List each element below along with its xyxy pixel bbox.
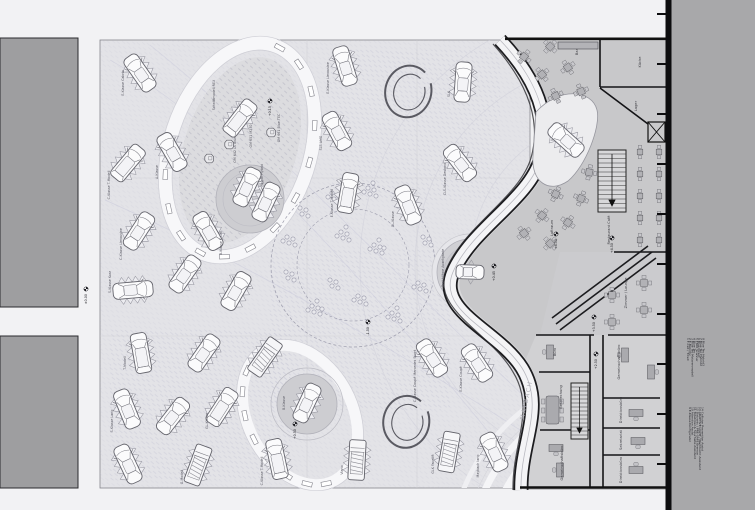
gravel-dot bbox=[335, 234, 339, 238]
level-marker-value: ±0.00 bbox=[84, 294, 88, 304]
gravel-dot bbox=[292, 278, 296, 282]
level-marker-value: +0.50 bbox=[293, 429, 297, 439]
level-marker-icon bbox=[293, 422, 297, 426]
level-marker-icon bbox=[492, 264, 496, 268]
restaurant-table bbox=[637, 145, 643, 158]
gravel-dot bbox=[416, 281, 420, 285]
room-label: Büro bbox=[553, 348, 557, 356]
car-label: Drehbühne Avantgarde bbox=[441, 249, 445, 287]
gravel-dot bbox=[423, 241, 427, 245]
gravel-dot bbox=[352, 298, 356, 302]
gravel-dot bbox=[291, 237, 295, 241]
gravel-dot bbox=[286, 276, 290, 280]
gravel-dot bbox=[290, 272, 294, 276]
gravel-dot bbox=[412, 285, 416, 289]
gravel-dot bbox=[380, 251, 384, 255]
gravel-dot bbox=[304, 208, 308, 212]
room-label: Restaurant Café bbox=[607, 215, 611, 245]
gravel-dot bbox=[418, 287, 422, 291]
room-label: Sekretariat bbox=[619, 429, 623, 449]
gravel-dot bbox=[386, 315, 390, 319]
car-label: B-Klasse F-Cell bbox=[219, 231, 223, 255]
gravel-dot bbox=[284, 270, 288, 274]
site-plan-svg: MAYBACH OM 661 Blue TECOM 651 M270 BIT T… bbox=[0, 0, 755, 510]
car-label: Maybach lang bbox=[476, 455, 480, 478]
car-label: E-Klasse Coupé bbox=[459, 366, 463, 391]
gravel-dot bbox=[374, 249, 378, 253]
engine-model bbox=[267, 128, 276, 137]
car-label: SLK bbox=[447, 90, 451, 97]
level-marker-icon bbox=[84, 287, 88, 291]
gravel-dot bbox=[422, 283, 426, 287]
gravel-dot bbox=[306, 308, 310, 312]
level-marker-value: +0.45 bbox=[492, 271, 496, 281]
gravel-dot bbox=[398, 319, 402, 323]
car-label: C-Klasse Limousine bbox=[119, 228, 123, 260]
display-panel bbox=[312, 120, 317, 130]
room-label: Küche bbox=[638, 56, 642, 68]
gravel-dot bbox=[421, 235, 425, 239]
gravel-dot bbox=[356, 294, 360, 298]
gravel-dot bbox=[281, 239, 285, 243]
level-marker-value: +0.15 bbox=[268, 106, 272, 116]
gravel-dot bbox=[330, 284, 334, 288]
gravel-dot bbox=[427, 237, 431, 241]
section-cut-bar bbox=[666, 0, 672, 510]
gravel-dot bbox=[371, 181, 375, 185]
car-label: CLS-Klasse Designo bbox=[443, 163, 447, 195]
car-label: E-Klasse T-Modell bbox=[330, 189, 334, 218]
gravel-dot bbox=[336, 286, 340, 290]
display-panel bbox=[163, 170, 168, 180]
level-marker-value: +4.50 bbox=[554, 239, 558, 249]
site-plan-sheet: MAYBACH OM 661 Blue TECOM 651 M270 BIT T… bbox=[0, 0, 755, 510]
bar-counter bbox=[558, 42, 598, 49]
car-label: GLK Facelift bbox=[431, 454, 435, 474]
gravel-dot bbox=[366, 186, 370, 190]
gravel-dot bbox=[368, 247, 372, 251]
gravel-dot bbox=[316, 306, 320, 310]
restaurant-table bbox=[656, 167, 662, 180]
gravel-dot bbox=[334, 280, 338, 284]
stair-restaurant bbox=[598, 150, 626, 212]
room-label: Bar bbox=[575, 48, 579, 55]
restaurant-table bbox=[656, 145, 662, 158]
car-label: S-Klasse Kurz bbox=[108, 271, 112, 293]
room-label: Direktionsbüro bbox=[619, 397, 623, 423]
gravel-dot bbox=[392, 317, 396, 321]
gravel-dot bbox=[315, 299, 319, 303]
car-label: C-Klasse Coupé Mercedes Sport bbox=[413, 349, 417, 402]
gravel-dot bbox=[424, 289, 428, 293]
gravel-dot bbox=[298, 206, 302, 210]
legend-item: 8 Blue Tec Hybrid3 bbox=[701, 338, 705, 366]
car-label: SLS AMG bbox=[319, 135, 323, 150]
legend-item: 14 Collision Prevention Assist bbox=[701, 407, 705, 452]
gravel-dot bbox=[368, 192, 372, 196]
level-marker-icon bbox=[366, 320, 370, 324]
legend-panel bbox=[672, 0, 755, 510]
room-label: Zimmer / Lounge bbox=[624, 277, 628, 309]
gravel-dot bbox=[364, 302, 368, 306]
gravel-dot bbox=[429, 243, 433, 247]
gravel-dot bbox=[287, 241, 291, 245]
gravel-dot bbox=[362, 296, 366, 300]
car-label: Viano bbox=[340, 465, 344, 474]
car-label: S-Klasse Lang bbox=[110, 410, 114, 433]
stair-office bbox=[571, 383, 588, 439]
gravel-dot bbox=[293, 243, 297, 247]
elevator bbox=[648, 122, 665, 142]
gravel-dot bbox=[378, 245, 382, 249]
level-marker-icon bbox=[554, 232, 558, 236]
room-label: Gemeinschaftsbüro bbox=[560, 446, 564, 481]
gravel-dot bbox=[312, 310, 316, 314]
gravel-dot bbox=[390, 311, 394, 315]
room-label: Direktionsbüro bbox=[619, 457, 623, 483]
gravel-dot bbox=[344, 225, 348, 229]
gravel-dot bbox=[300, 212, 304, 216]
level-marker-value: +2.50 bbox=[594, 359, 598, 369]
gravel-dot bbox=[328, 278, 332, 282]
restaurant-table bbox=[637, 167, 643, 180]
gravel-dot bbox=[374, 194, 378, 198]
car-label: E-Klasse Limousine bbox=[326, 62, 330, 94]
gravel-dot bbox=[318, 312, 322, 316]
gravel-dot bbox=[358, 300, 362, 304]
gravel-dot bbox=[372, 188, 376, 192]
restaurant-table bbox=[656, 233, 662, 246]
restaurant-table bbox=[656, 189, 662, 202]
level-marker-value: -1.50 bbox=[366, 327, 370, 336]
gravel-dot bbox=[395, 306, 399, 310]
level-marker-icon bbox=[592, 315, 596, 319]
gravel-dot bbox=[347, 238, 351, 242]
car-label: B-Klasse bbox=[282, 396, 286, 410]
car-label: C-Klasse T-Modell bbox=[107, 171, 111, 200]
car-label: T-Modell bbox=[123, 356, 127, 371]
gravel-dot bbox=[310, 304, 314, 308]
gravel-dot bbox=[339, 230, 343, 234]
level-marker-icon bbox=[268, 99, 272, 103]
gravel-dot bbox=[306, 214, 310, 218]
room-label: Besprechung bbox=[559, 385, 563, 409]
car-label: E-Klasse Cabrio bbox=[121, 70, 125, 96]
gravel-dot bbox=[396, 313, 400, 317]
car-label: SL-Klasse bbox=[391, 211, 395, 227]
display-panel bbox=[240, 387, 245, 397]
room-label: Lager bbox=[634, 100, 638, 111]
car-label: GL-Klasse bbox=[205, 413, 209, 429]
restaurant-table bbox=[637, 211, 643, 224]
restaurant-table bbox=[637, 233, 643, 246]
gravel-dot bbox=[341, 236, 345, 240]
adjacent-building-south bbox=[0, 336, 78, 488]
car-label: Schnittmodell REX bbox=[212, 79, 216, 110]
level-marker-icon bbox=[594, 352, 598, 356]
car-label: C-Klasse T-Modell bbox=[260, 457, 264, 486]
room-label: Gemeinschaftsbüro bbox=[617, 345, 621, 380]
gravel-dot bbox=[372, 243, 376, 247]
level-marker-value: +3.50 bbox=[592, 322, 596, 332]
gravel-dot bbox=[345, 232, 349, 236]
gravel-dot bbox=[285, 235, 289, 239]
gravel-dot bbox=[382, 246, 386, 250]
gravel-dot bbox=[377, 238, 381, 242]
engine-model bbox=[205, 154, 214, 163]
car-label: G-Modell bbox=[180, 470, 184, 485]
car-label: A-Klasse bbox=[155, 165, 159, 179]
restaurant-table bbox=[637, 189, 643, 202]
room-label: Luftraum bbox=[550, 219, 554, 236]
gravel-dot bbox=[362, 190, 366, 194]
adjacent-building-north bbox=[0, 38, 78, 307]
gravel-dot bbox=[320, 307, 324, 311]
engine-label: OM 661 Blue TEC bbox=[277, 113, 281, 142]
